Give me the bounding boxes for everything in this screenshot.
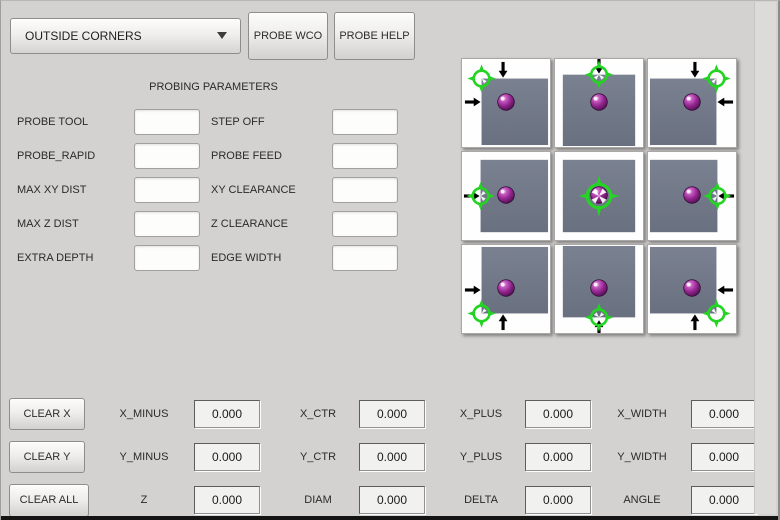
window-bottom-edge — [1, 516, 780, 520]
y-minus-label: Y_MINUS — [99, 443, 189, 471]
probe-screen-window: OUTSIDE CORNERS PROBE WCO PROBE HELP PRO… — [0, 0, 780, 520]
chevron-down-icon — [217, 32, 227, 39]
z-clearance-label: Z CLEARANCE — [211, 211, 288, 237]
max-z-dist-label: MAX Z DIST — [17, 211, 79, 237]
max-xy-dist-label: MAX XY DIST — [17, 177, 86, 203]
z-readout: 0.000 — [194, 486, 260, 514]
angle-label: ANGLE — [597, 486, 687, 514]
probe-help-button[interactable]: PROBE HELP — [334, 12, 415, 60]
z-label: Z — [99, 486, 189, 514]
xy-clearance-label: XY CLEARANCE — [211, 177, 296, 203]
extra-depth-label: EXTRA DEPTH — [17, 245, 93, 271]
y-plus-label: Y_PLUS — [436, 443, 526, 471]
x-ctr-label: X_CTR — [273, 400, 363, 428]
xy-clearance-input[interactable] — [332, 177, 398, 203]
y-plus-readout: 0.000 — [525, 443, 591, 471]
x-minus-label: X_MINUS — [99, 400, 189, 428]
probe-rapid-input[interactable] — [134, 143, 200, 169]
probe-cell-bottom-left — [461, 244, 551, 334]
diam-label: DIAM — [273, 486, 363, 514]
probing-parameters-title: PROBING PARAMETERS — [106, 81, 321, 93]
x-minus-readout: 0.000 — [194, 400, 260, 428]
probe-feed-input[interactable] — [332, 143, 398, 169]
probe-tool-label: PROBE TOOL — [17, 109, 88, 135]
y-minus-readout: 0.000 — [194, 443, 260, 471]
probe-cell-top-center — [554, 58, 644, 148]
probe-cell-middle-left — [461, 151, 551, 241]
x-plus-readout: 0.000 — [525, 400, 591, 428]
x-width-label: X_WIDTH — [597, 400, 687, 428]
probe-mode-select[interactable]: OUTSIDE CORNERS — [10, 18, 241, 54]
right-panel-strip — [754, 2, 776, 514]
x-plus-label: X_PLUS — [436, 400, 526, 428]
probe-mode-select-value: OUTSIDE CORNERS — [25, 29, 142, 43]
y-ctr-label: Y_CTR — [273, 443, 363, 471]
probe-rapid-label: PROBE_RAPID — [17, 143, 95, 169]
y-ctr-readout: 0.000 — [359, 443, 425, 471]
probe-cell-middle-right — [647, 151, 737, 241]
probe-wco-button[interactable]: PROBE WCO — [248, 12, 328, 60]
x-width-readout: 0.000 — [691, 400, 757, 428]
probe-position-diagram — [461, 58, 737, 334]
probe-cell-top-right — [647, 58, 737, 148]
probe-cell-bottom-center — [554, 244, 644, 334]
max-xy-dist-input[interactable] — [134, 177, 200, 203]
diam-readout: 0.000 — [359, 486, 425, 514]
probe-tool-input[interactable] — [134, 109, 200, 135]
x-ctr-readout: 0.000 — [359, 400, 425, 428]
edge-width-label: EDGE WIDTH — [211, 245, 281, 271]
max-z-dist-input[interactable] — [134, 211, 200, 237]
extra-depth-input[interactable] — [134, 245, 200, 271]
step-off-label: STEP OFF — [211, 109, 265, 135]
probe-feed-label: PROBE FEED — [211, 143, 282, 169]
delta-label: DELTA — [436, 486, 526, 514]
probe-cell-bottom-right — [647, 244, 737, 334]
y-width-label: Y_WIDTH — [597, 443, 687, 471]
angle-readout: 0.000 — [691, 486, 757, 514]
step-off-input[interactable] — [332, 109, 398, 135]
z-clearance-input[interactable] — [332, 211, 398, 237]
edge-width-input[interactable] — [332, 245, 398, 271]
probe-cell-top-left — [461, 58, 551, 148]
probe-cell-center — [554, 151, 644, 241]
y-width-readout: 0.000 — [691, 443, 757, 471]
delta-readout: 0.000 — [525, 486, 591, 514]
